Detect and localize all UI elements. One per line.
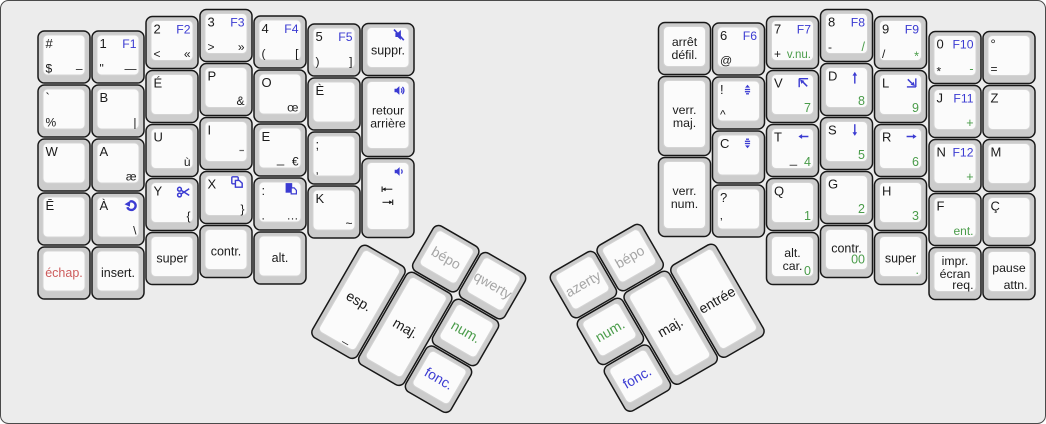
svg-text:F10: F10	[952, 38, 973, 52]
svg-text:}: }	[240, 202, 244, 216]
svg-text:æ: æ	[126, 170, 137, 184]
svg-text:…: …	[287, 209, 299, 223]
svg-text:Y: Y	[154, 184, 163, 199]
svg-text:num.: num.	[671, 197, 698, 211]
svg-text:3: 3	[208, 15, 215, 30]
svg-text:4: 4	[804, 155, 811, 169]
svg-text:F5: F5	[338, 30, 352, 44]
svg-text:F1: F1	[122, 37, 136, 51]
svg-text:]: ]	[349, 55, 352, 69]
svg-text:1: 1	[100, 36, 107, 51]
svg-text:?: ?	[720, 190, 727, 205]
svg-text:P: P	[208, 69, 217, 84]
svg-text:E: E	[262, 129, 271, 144]
svg-text:*: *	[914, 50, 919, 64]
svg-text:2: 2	[858, 202, 865, 216]
svg-text:{: {	[186, 209, 190, 223]
svg-text:5: 5	[316, 29, 323, 44]
svg-text:retour: retour	[372, 104, 404, 118]
svg-text:8: 8	[858, 94, 865, 108]
svg-text:suppr.: suppr.	[371, 44, 405, 58]
svg-text:ent.: ent.	[953, 224, 973, 238]
svg-text:$: $	[46, 62, 53, 76]
svg-text:F2: F2	[176, 23, 190, 37]
svg-text:échap.: échap.	[45, 266, 83, 280]
svg-text:0: 0	[937, 37, 944, 52]
svg-text:9: 9	[882, 22, 889, 37]
svg-text:): )	[316, 55, 320, 69]
svg-text:7: 7	[774, 22, 781, 37]
svg-text:+: +	[774, 47, 781, 61]
svg-text:>: >	[208, 40, 215, 54]
svg-text:F: F	[937, 199, 945, 214]
svg-text:5: 5	[858, 148, 865, 162]
svg-text:maj.: maj.	[673, 116, 696, 130]
svg-text:car.: car.	[783, 259, 803, 273]
svg-text:A: A	[100, 144, 109, 159]
svg-text:%: %	[46, 116, 57, 130]
svg-text:6: 6	[912, 155, 919, 169]
svg-text:É: É	[154, 76, 163, 91]
svg-text:ù: ù	[184, 155, 191, 169]
svg-text:B: B	[100, 90, 109, 105]
svg-text:/: /	[862, 40, 866, 54]
svg-text:F7: F7	[797, 23, 811, 37]
svg-text:@: @	[720, 54, 732, 68]
svg-text:1: 1	[804, 209, 811, 223]
svg-text:F9: F9	[905, 23, 919, 37]
svg-text:œ: œ	[287, 101, 298, 115]
svg-text:|: |	[133, 116, 136, 130]
svg-text:T: T	[774, 130, 782, 145]
svg-text:(: (	[262, 47, 266, 61]
svg-text:super: super	[885, 252, 916, 266]
svg-text:7: 7	[804, 101, 811, 115]
svg-text:.: .	[262, 209, 265, 223]
svg-text:»: »	[238, 40, 245, 54]
svg-text:`: `	[46, 90, 50, 105]
svg-text:Ē: Ē	[46, 198, 55, 213]
svg-text:«: «	[184, 47, 191, 61]
svg-text:alt.: alt.	[272, 251, 289, 265]
svg-text:req.: req.	[952, 278, 973, 292]
svg-text:S: S	[828, 123, 837, 138]
svg-text:O: O	[262, 75, 272, 90]
svg-text:F6: F6	[743, 29, 757, 43]
svg-text:R: R	[882, 130, 891, 145]
svg-text:pause: pause	[992, 261, 1026, 275]
svg-text:super: super	[156, 252, 187, 266]
svg-text:,: ,	[316, 163, 319, 177]
svg-text:X: X	[208, 177, 217, 192]
svg-text:F4: F4	[284, 22, 298, 36]
svg-text:&: &	[236, 94, 244, 108]
svg-text:F12: F12	[952, 146, 973, 160]
svg-text:€: €	[292, 155, 299, 169]
svg-text:È: È	[316, 83, 325, 98]
svg-text:impr.: impr.	[942, 254, 969, 268]
svg-text:#: #	[46, 36, 54, 51]
svg-text:-: -	[969, 62, 973, 76]
svg-text:C: C	[720, 136, 729, 151]
svg-text:–: –	[76, 62, 83, 76]
svg-text:verr.: verr.	[673, 184, 697, 198]
svg-text:Z: Z	[991, 91, 999, 106]
svg-text:Q: Q	[774, 184, 784, 199]
svg-text:J: J	[937, 91, 944, 106]
svg-text:I: I	[208, 123, 212, 138]
svg-text:D: D	[828, 69, 837, 84]
svg-text:N: N	[937, 145, 946, 160]
svg-text:K: K	[316, 191, 325, 206]
svg-text:v.nu.: v.nu.	[787, 49, 811, 61]
svg-text:^: ^	[720, 108, 726, 122]
svg-text:’: ’	[720, 216, 723, 230]
svg-text:verr.: verr.	[673, 103, 697, 117]
svg-text:4: 4	[262, 21, 269, 36]
svg-text:U: U	[154, 130, 163, 145]
svg-text:V: V	[774, 76, 783, 91]
svg-text:=: =	[991, 62, 998, 76]
svg-text:;: ;	[316, 137, 320, 152]
svg-text:contr.: contr.	[211, 245, 242, 259]
svg-text::: :	[262, 183, 266, 198]
svg-text:+: +	[966, 170, 973, 184]
svg-text:défil.: défil.	[672, 48, 698, 62]
svg-text:—: —	[125, 62, 137, 76]
svg-text:*: *	[937, 65, 942, 79]
svg-text:+: +	[966, 116, 973, 130]
svg-text:": "	[100, 62, 104, 76]
svg-text:0: 0	[804, 264, 811, 278]
svg-text:9: 9	[912, 101, 919, 115]
svg-text:À: À	[100, 198, 109, 213]
svg-text:-: -	[828, 40, 832, 54]
svg-text:H: H	[882, 184, 891, 199]
svg-text:2: 2	[154, 22, 161, 37]
svg-text:arrière: arrière	[370, 117, 406, 131]
svg-text:L: L	[882, 76, 889, 91]
svg-text:3: 3	[912, 209, 919, 223]
svg-text:Ç: Ç	[991, 199, 1000, 214]
svg-text:<: <	[154, 47, 161, 61]
svg-text:arrêt: arrêt	[672, 35, 698, 49]
svg-text:alt.: alt.	[784, 246, 800, 260]
svg-text:G: G	[828, 177, 838, 192]
svg-text:8: 8	[828, 15, 835, 30]
svg-text:F3: F3	[230, 16, 244, 30]
svg-text:~: ~	[345, 217, 352, 231]
svg-text:F8: F8	[851, 16, 865, 30]
svg-text:M: M	[991, 145, 1002, 160]
svg-text:insert.: insert.	[101, 266, 135, 280]
svg-text:F11: F11	[953, 92, 973, 106]
svg-text:00: 00	[851, 253, 865, 267]
svg-text:attn.: attn.	[1004, 278, 1028, 292]
svg-text:.: .	[916, 263, 919, 277]
svg-text:6: 6	[720, 28, 727, 43]
svg-text:W: W	[46, 144, 59, 159]
svg-text:!: !	[720, 82, 724, 97]
svg-text:°: °	[991, 37, 996, 52]
